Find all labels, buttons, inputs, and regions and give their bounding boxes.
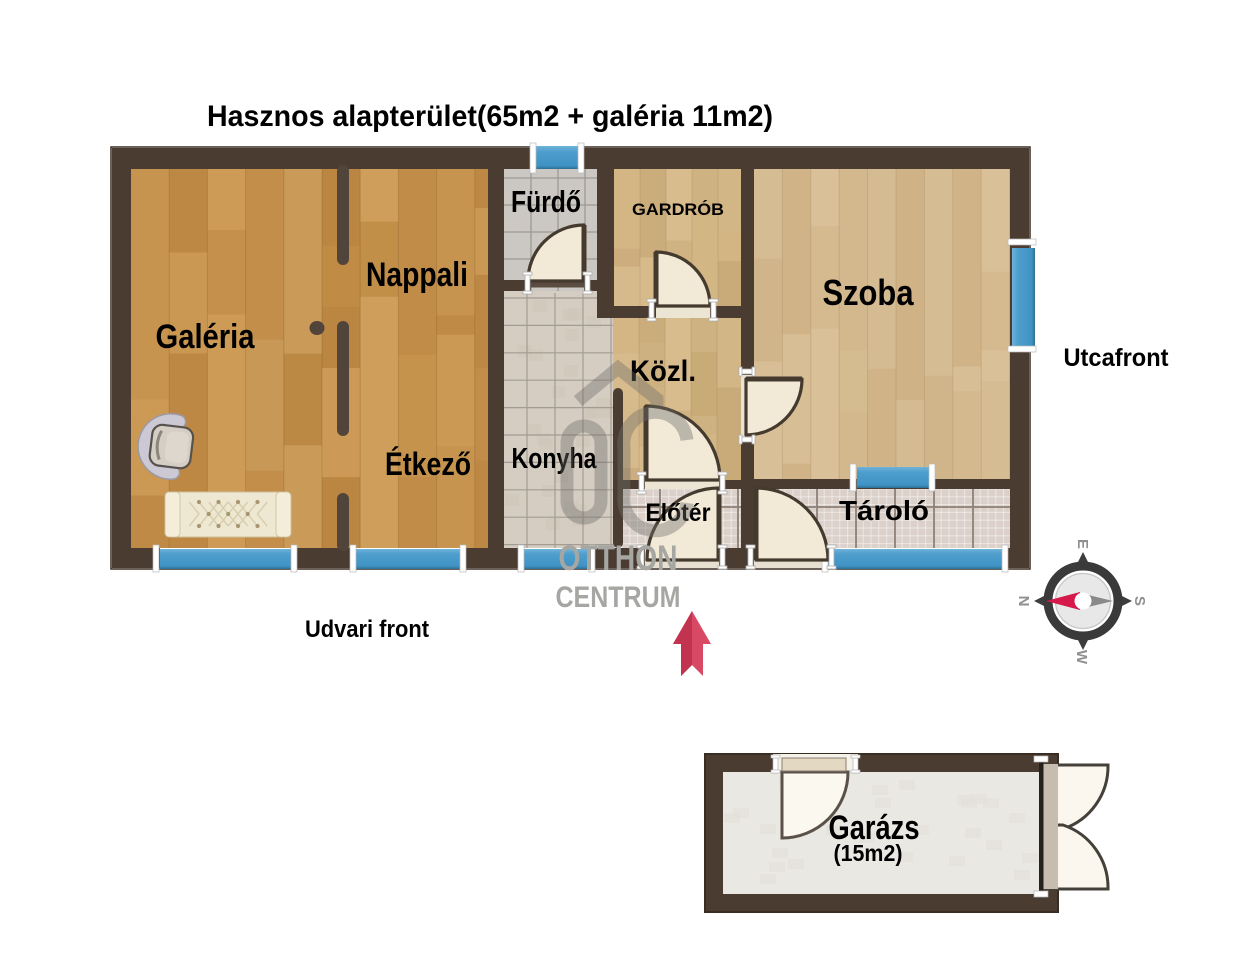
svg-text:Galéria: Galéria [156, 318, 256, 356]
svg-text:Nappali: Nappali [366, 256, 468, 294]
svg-text:Szoba: Szoba [823, 272, 915, 313]
svg-text:Étkező: Étkező [385, 446, 471, 482]
svg-text:CENTRUM: CENTRUM [556, 581, 681, 614]
svg-text:Hasznos alapterület(65m2 + gal: Hasznos alapterület(65m2 + galéria 11m2) [207, 100, 773, 133]
svg-text:Utcafront: Utcafront [1064, 344, 1170, 372]
svg-text:S: S [1131, 596, 1148, 606]
svg-text:Udvari front: Udvari front [305, 616, 429, 643]
svg-text:W: W [1073, 650, 1090, 665]
svg-text:OTTHON: OTTHON [559, 539, 678, 578]
svg-text:(15m2): (15m2) [834, 840, 903, 866]
svg-text:N: N [1015, 596, 1032, 607]
svg-text:GARDRÓB: GARDRÓB [632, 200, 724, 219]
svg-text:Tároló: Tároló [839, 495, 929, 526]
svg-text:E: E [1074, 539, 1091, 549]
svg-text:Fürdő: Fürdő [511, 184, 581, 219]
svg-text:Konyha: Konyha [512, 443, 598, 475]
